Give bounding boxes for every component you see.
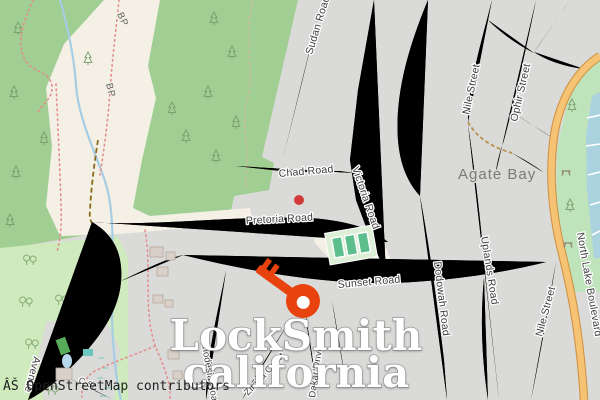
map-canvas[interactable]: BP BP Sudan Road Chad Road Victoria Road…	[0, 0, 600, 400]
map-svg: BP BP Sudan Road Chad Road Victoria Road…	[0, 0, 600, 400]
label-agate-bay: Agate Bay	[458, 166, 536, 183]
map-attribution: ÂŠ OpenStreetMap contributors	[3, 378, 230, 394]
poi-red-dot[interactable]	[294, 195, 304, 205]
